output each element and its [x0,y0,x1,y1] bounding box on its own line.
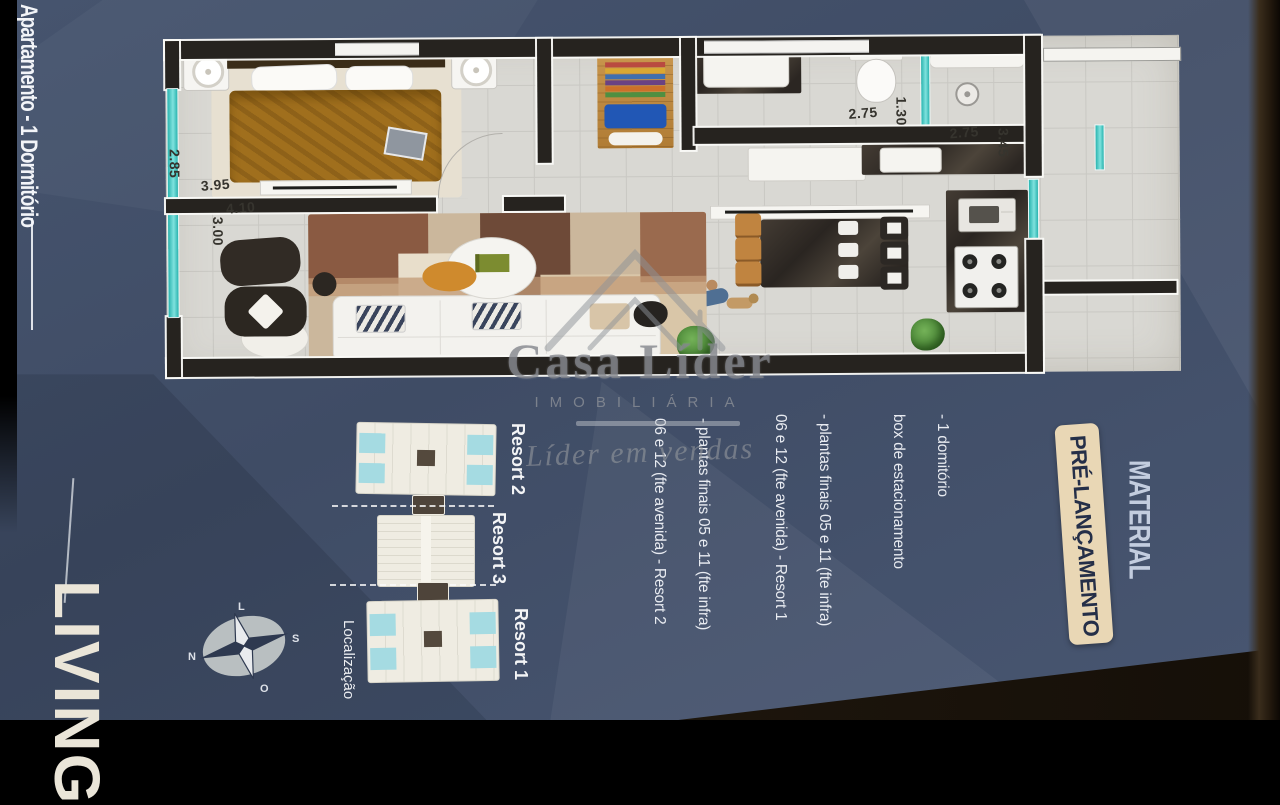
living-room-label: LIVING [40,580,114,805]
toilet-bowl [856,59,896,103]
wall-right-bottom [1026,240,1043,372]
window-segment [704,40,869,54]
building-wing [470,612,496,634]
wall-right-top [1025,36,1042,176]
dimension-label: 4.10 [225,199,255,217]
material-label: MATERIAL [1115,460,1162,640]
throw-pillow [472,302,522,330]
balcony-door-glass [1029,180,1038,238]
clothes-item [605,80,665,85]
wall-closet-right [681,38,696,150]
shower-head-icon [955,82,979,106]
balcony-railing-top [1043,47,1181,62]
building-label: Resort 2 [507,423,528,495]
wardrobe [597,56,674,148]
site-divider [332,505,494,507]
dining-chair [880,217,908,240]
burner-icon [991,254,1006,269]
building-wing [370,614,396,636]
wall-bath-divider [695,126,1042,144]
clothes-item [605,62,665,67]
compass-letter: S [292,633,299,645]
dimension-label: 2.75 [848,104,878,122]
building-wing [359,463,385,483]
building-wing [370,648,396,670]
double-bed [227,55,446,184]
lamp-icon [460,54,492,86]
napkin [887,248,901,259]
house-logo-icon [540,242,730,352]
stove [954,246,1018,308]
orange-pouf [422,261,476,291]
dining-chair [880,267,908,290]
building-resort-3 [377,515,475,587]
clothes-item [605,68,665,73]
dimension-label: 2.75 [949,123,979,141]
armchair [224,286,306,336]
compass-letter: O [260,683,269,695]
clothes-item [605,74,665,79]
note-line: 06 e 12 (fte avenida) - Resort 2 [637,418,681,630]
napkin [887,273,901,284]
balcony-glass-panel [1096,125,1104,169]
balcony-mid-wall [1044,281,1176,294]
building-corridor [421,516,431,586]
building-wing [467,435,493,455]
feature-list: - 1 domitório box de estacionamento [876,414,964,569]
building-wing [467,465,493,485]
wall-left-top [165,41,179,89]
diamond-pillow [247,293,284,330]
shower-head-dot [964,91,970,97]
note-resort-1: - plantas finais 05 e 11 (fte infra) 06 … [758,414,846,626]
armchair [219,236,302,288]
building-wing [470,646,496,668]
compass-rose-icon: L S N O [186,598,306,698]
dog-head [749,293,759,303]
prelaunch-badge: PRÉ-LANÇAMENTO [1054,423,1113,646]
place-setting [838,265,858,279]
burner-icon [962,283,977,298]
building-core [417,450,435,466]
photo-edge-right [1248,0,1280,720]
sofa-seam [440,300,441,354]
green-book [475,254,509,272]
storage-cabinet [748,147,866,182]
throw-pillow [356,305,406,333]
window-segment [335,43,419,57]
lavabo-sink [880,147,942,172]
faucet-icon [1001,211,1013,213]
side-table [312,272,336,296]
promo-block: MATERIAL PRÉ-LANÇAMENTO [1062,424,1162,644]
burner-icon [991,283,1006,298]
burner-icon [962,254,977,269]
feature-item: - 1 domitório [920,414,964,569]
folded-blue-item [604,104,666,128]
kitchen-sink-basin [969,206,999,223]
wall-bedroom-divider [166,197,436,213]
dimension-label: 3.45 [996,128,1012,157]
clothes-item [605,86,665,91]
lamp-icon [192,56,224,88]
place-setting [838,243,858,257]
note-line: 06 e 12 (fte avenida) - Resort 1 [758,414,802,626]
wall-divider-stub [504,197,564,211]
note-line: - plantas finais 05 e 11 (fte infra) [681,418,725,630]
dimension-label: 3.95 [200,176,230,194]
site-divider [330,584,496,586]
dining-chair [880,242,908,265]
title-rule [31,218,33,330]
dimension-label: 2.85 [167,149,183,178]
dimension-label: 3.00 [210,217,226,246]
building-resort-2 [355,422,496,496]
note-resort-2: - plantas finais 05 e 11 (fte infra) 06 … [637,418,725,630]
folded-white-item [609,132,663,145]
napkin [887,223,901,234]
feature-item: box de estacionamento [876,414,920,569]
wall-bedroom-right [537,39,552,163]
compass-letter: L [238,601,245,613]
note-line: - plantas finais 05 e 11 (fte infra) [802,414,846,626]
bed-pillow [251,64,338,94]
building-wing [359,433,385,453]
photo-edge-left [0,0,17,720]
place-setting [838,221,858,235]
wall-left-bottom [167,317,181,377]
dining-chair [735,237,761,262]
clothes-item [605,92,665,97]
building-label: Resort 3 [488,512,509,584]
building-core [424,631,442,647]
apartment-title: Apartamento - 1 Dormitório [14,4,42,227]
compass-letter: N [188,651,196,663]
building-label: Resort 1 [510,608,531,680]
dining-chair [735,213,761,238]
site-map-label: Localização [340,620,357,699]
bed-pillow [345,66,413,92]
dimension-label: 1.30 [893,97,909,126]
tv-console-bedroom [260,180,412,196]
kitchen-sink [958,198,1016,232]
building-resort-1 [366,599,499,683]
tv-icon [273,186,397,190]
